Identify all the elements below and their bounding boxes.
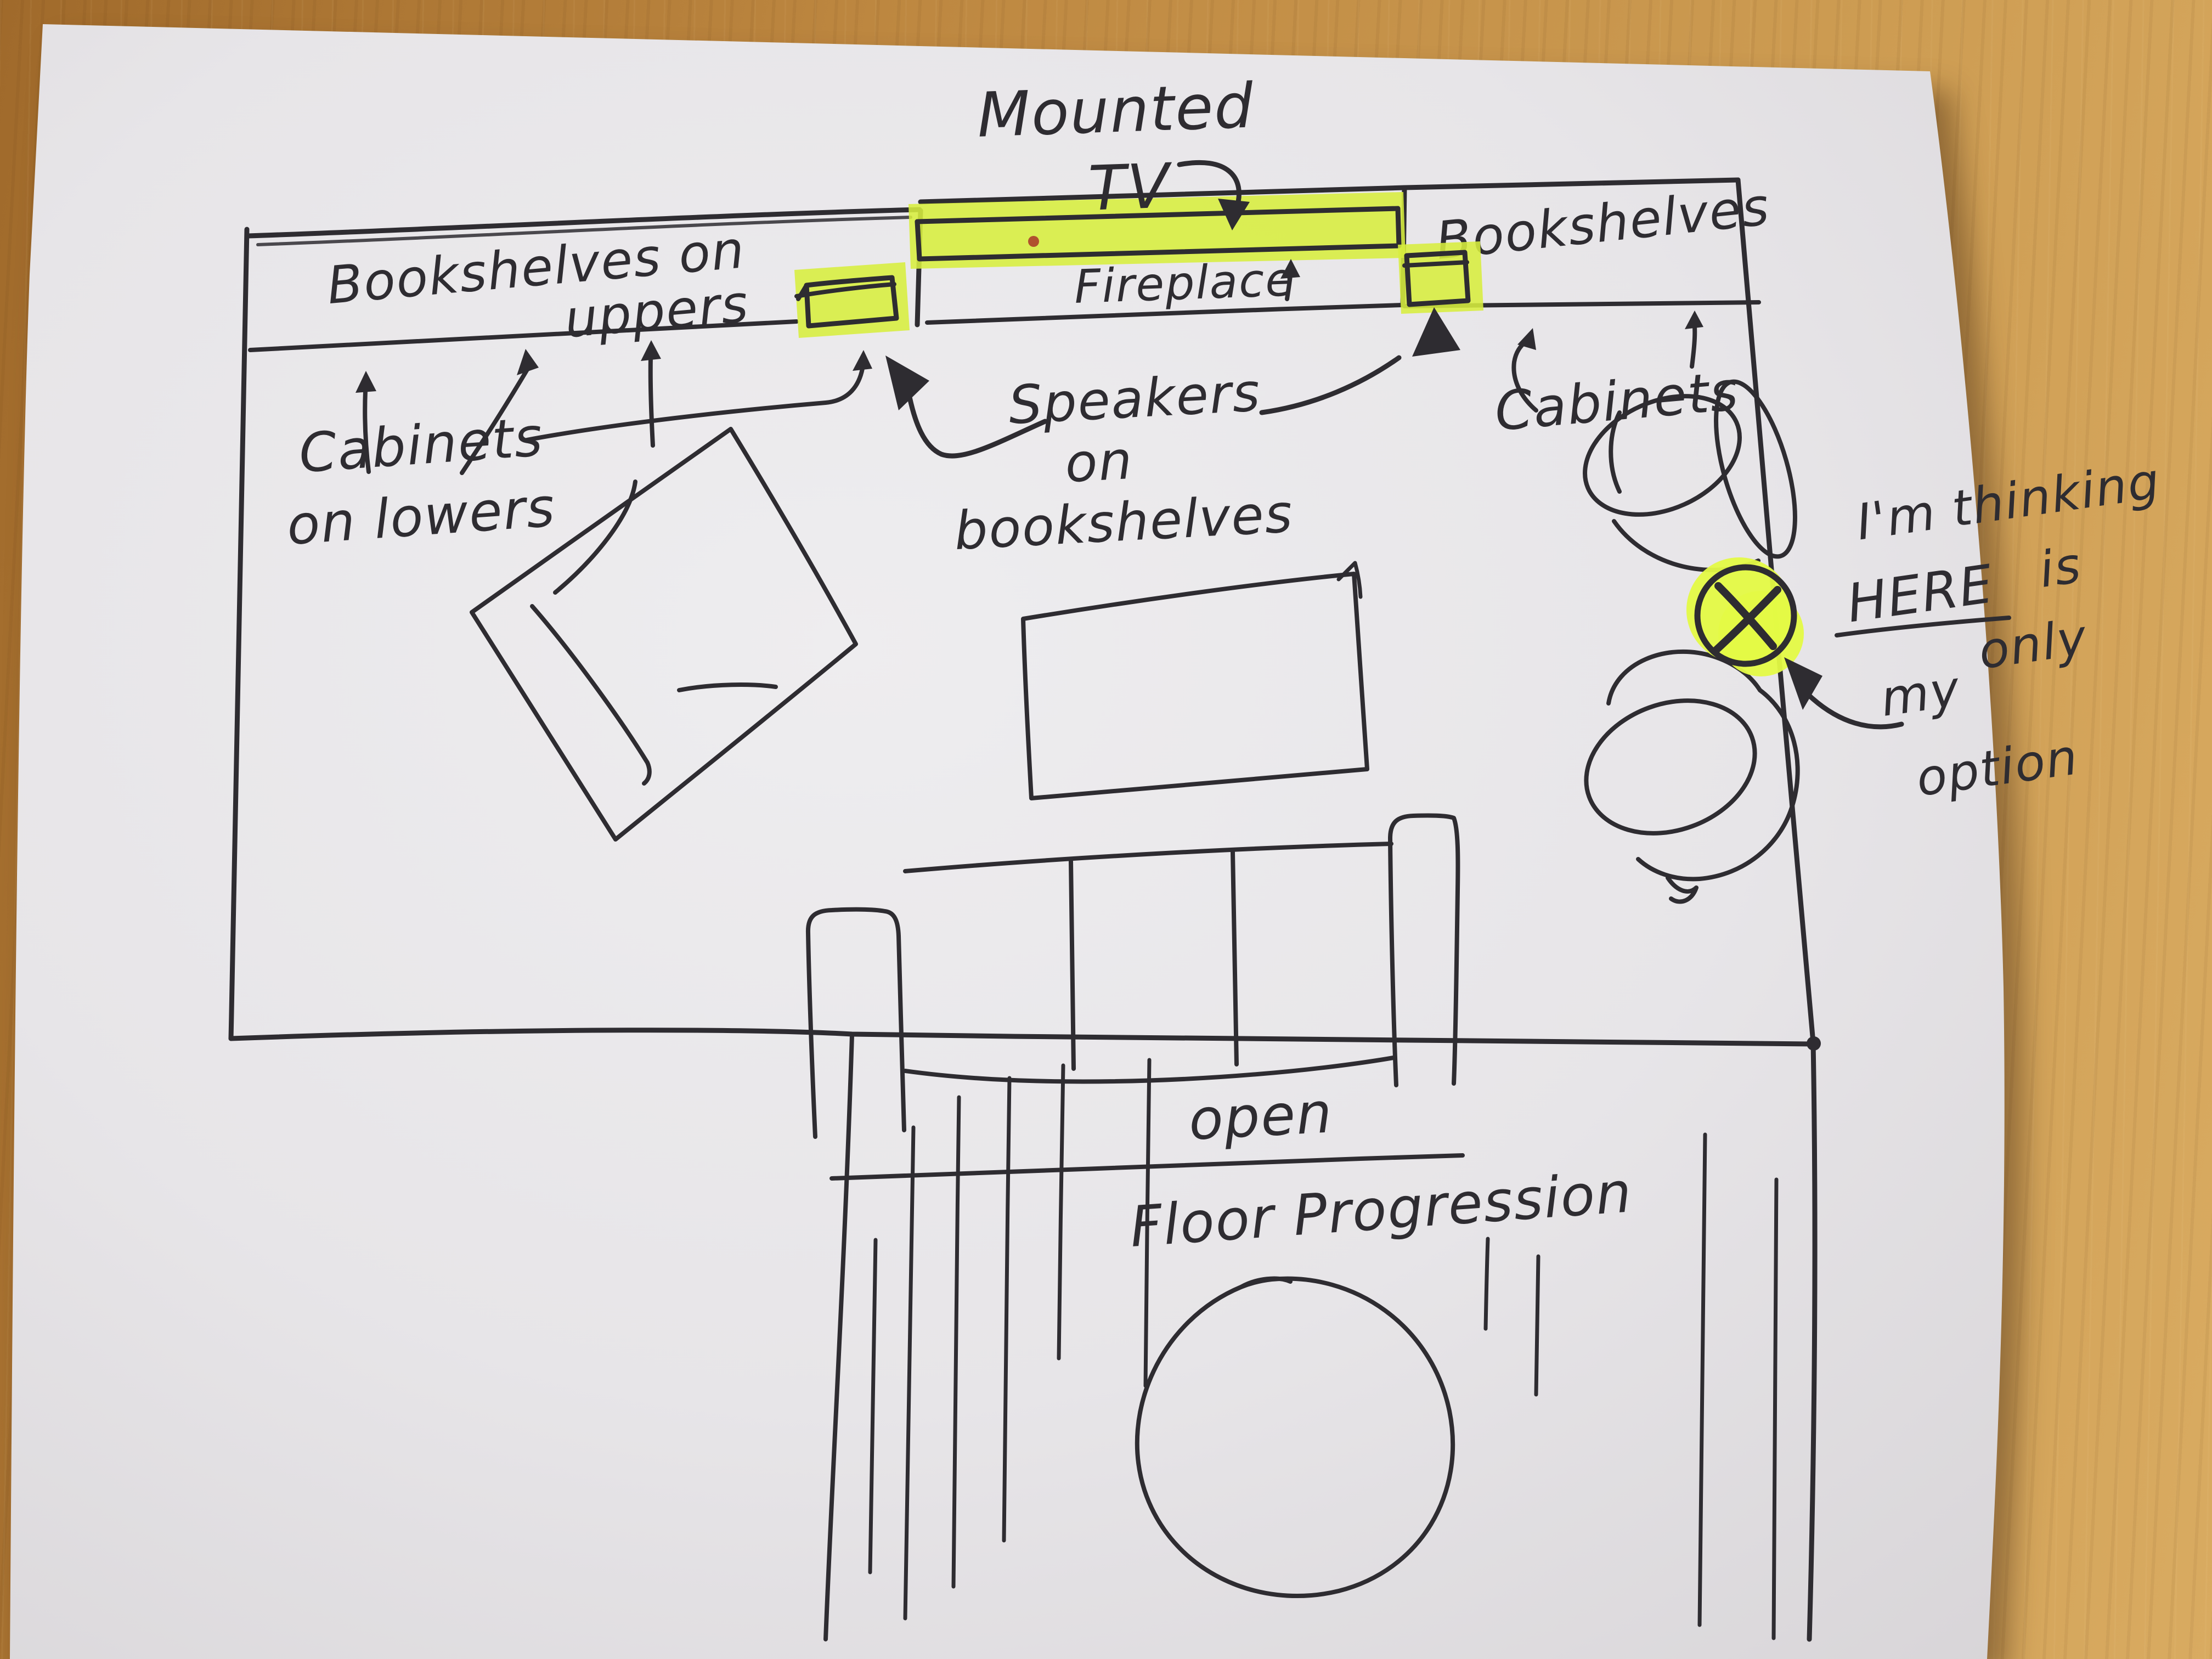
floor-line — [1486, 1239, 1488, 1329]
floor-line — [1536, 1256, 1538, 1395]
speaker-left — [794, 262, 910, 338]
fireplace-label-text: Fireplace — [1073, 252, 1295, 314]
note-is: is — [2036, 537, 2085, 600]
sofa-cushion-divider-1 — [1071, 861, 1074, 1069]
speaker-right — [1398, 241, 1483, 314]
wall-junction-dot — [1807, 1036, 1821, 1051]
mounted-tv-label-line2: TV — [1087, 150, 1175, 224]
desk-photo: Mounted TV Bookshelves on uppers Firepla… — [0, 0, 2212, 1659]
tv-bar-left-end — [917, 222, 919, 259]
tv-red-dot — [1028, 236, 1039, 247]
cabinets-arrow-3 — [651, 358, 653, 445]
floor-plan-sketch: Mounted TV Bookshelves on uppers Firepla… — [0, 0, 2212, 1659]
mounted-tv-label-line1: Mounted — [976, 70, 1255, 151]
note-my: my — [1877, 660, 1964, 728]
fireplace-label: Fireplace — [1073, 252, 1300, 314]
speakers-line2: on — [1064, 430, 1135, 494]
open-floor-line1: open — [1187, 1080, 1334, 1153]
tv-bar-right-end — [1398, 208, 1399, 246]
